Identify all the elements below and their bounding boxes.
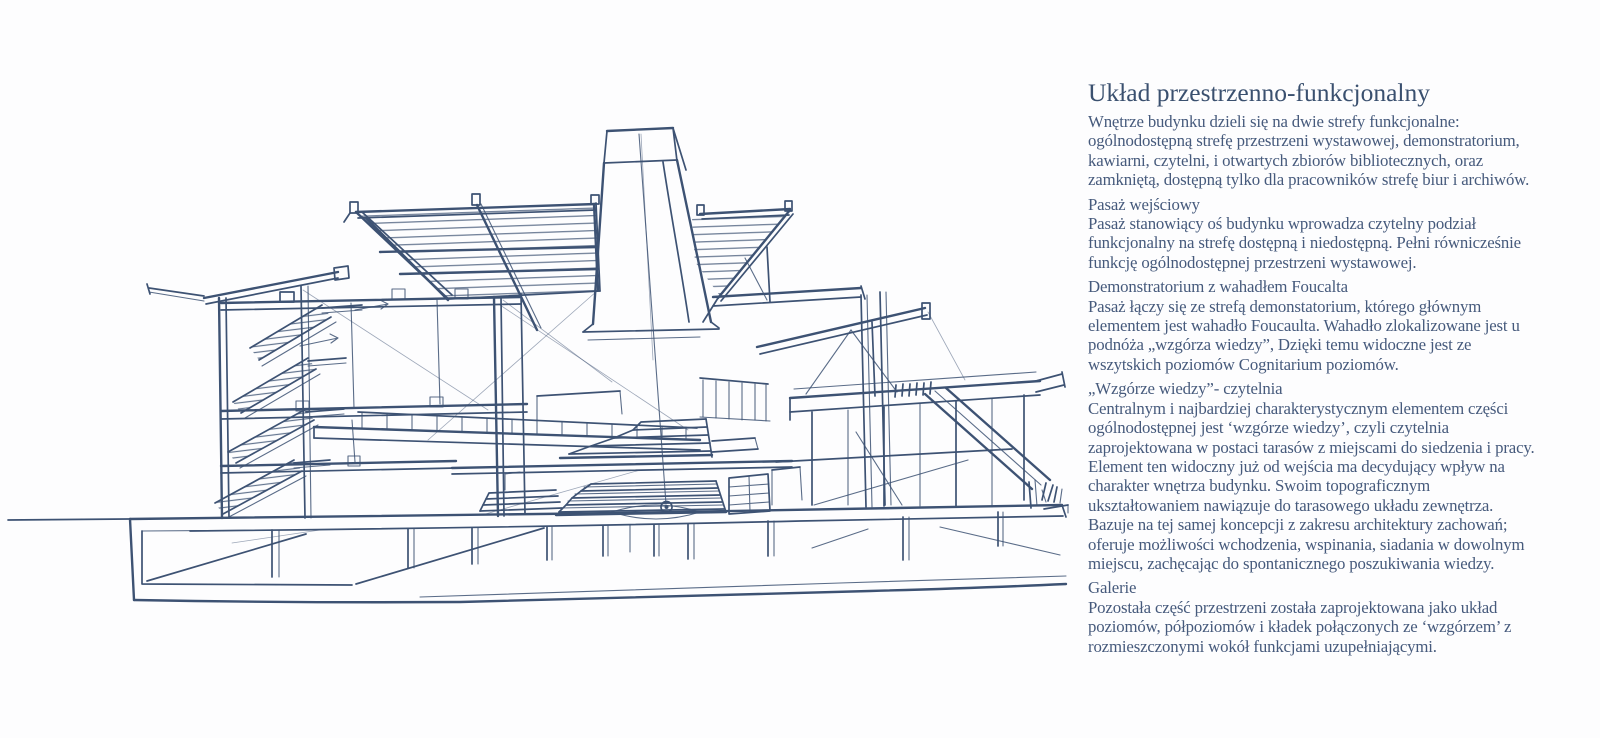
foundation [134,527,1066,602]
description-section: Pasaż wejściowy Pasaż stanowiący oś budy… [1088,195,1540,273]
sketch-panel [0,0,1080,733]
section-heading: Galerie [1088,578,1540,597]
right-deck [776,372,1065,507]
section-heading: Demonstratorium z wahadłem Foucalta [1088,277,1540,296]
section-paragraph: Wnętrze budynku dzieli się na dwie stref… [1088,112,1540,190]
section-paragraph: Pasaż łączy się ze strefą demonstatorium… [1088,297,1540,375]
section-paragraph: Centralnym i najbardziej charakterystycz… [1088,399,1540,574]
section-paragraph: Pasaż stanowiący oś budynku wprowadza cz… [1088,214,1540,272]
section-paragraph: Pozostała część przestrzeni została zapr… [1088,598,1540,656]
building-section-sketch [0,0,1080,733]
foucault-pendulum [612,134,700,519]
section-heading: Pasaż wejściowy [1088,195,1540,214]
ground-slab [8,505,1066,600]
pilotis-columns [272,512,1003,577]
project-description: Układ przestrzenno-funkcjonalny Wnętrze … [1088,78,1540,656]
description-section: Demonstratorium z wahadłem Foucalta Pasa… [1088,277,1540,374]
section-heading: „Wzgórze wiedzy”- czytelnia [1088,379,1540,398]
ramp [925,312,1068,513]
description-section: „Wzgórze wiedzy”- czytelnia Centralnym i… [1088,379,1540,573]
description-section: Galerie Pozostała część przestrzeni zost… [1088,578,1540,656]
left-roof-canopy [344,194,600,330]
description-section: Wnętrze budynku dzieli się na dwie stref… [1088,112,1540,190]
page-title: Układ przestrzenno-funkcjonalny [1088,78,1540,108]
